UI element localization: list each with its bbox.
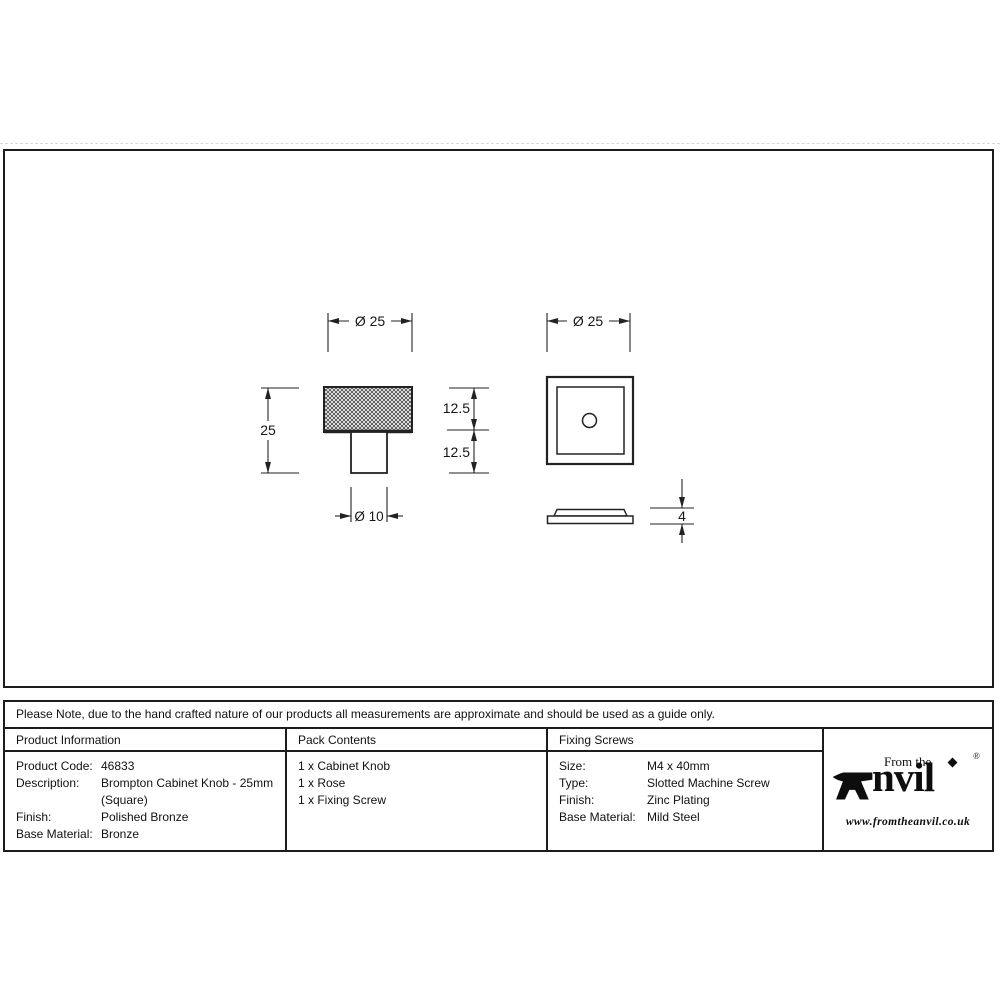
screw-base-material-row: Base Material: Mild Steel bbox=[559, 809, 814, 826]
pack-item: 1 x Rose bbox=[298, 775, 538, 792]
brand-logo-cell: From the ® nvil www.fromtheanvil.co.uk bbox=[824, 729, 992, 850]
fixing-screws-column: Fixing Screws Size: M4 x 40mm Type: Slot… bbox=[548, 729, 824, 850]
dim-label-stem-width: Ø 10 bbox=[354, 509, 383, 524]
screw-size-row: Size: M4 x 40mm bbox=[559, 758, 814, 775]
knob-head bbox=[324, 387, 412, 432]
finish-row: Finish: Polished Bronze bbox=[16, 809, 277, 826]
screw-type-row: Type: Slotted Machine Screw bbox=[559, 775, 814, 792]
pack-contents-header: Pack Contents bbox=[287, 729, 546, 752]
knob-stem bbox=[351, 432, 387, 473]
registered-trademark-symbol: ® bbox=[973, 751, 980, 761]
screw-finish-row: Finish: Zinc Plating bbox=[559, 792, 814, 809]
rose-side-top-plate bbox=[554, 510, 627, 517]
screw-type-label: Type: bbox=[559, 775, 647, 792]
dimension-rose-thickness bbox=[650, 479, 694, 543]
product-information-header: Product Information bbox=[5, 729, 285, 752]
dim-label-rose-thickness: 4 bbox=[678, 508, 686, 524]
diamond-icon bbox=[948, 757, 958, 767]
finish-label: Finish: bbox=[16, 809, 101, 826]
product-code-row: Product Code: 46833 bbox=[16, 758, 277, 775]
screw-finish-label: Finish: bbox=[559, 792, 647, 809]
description-label: Description: bbox=[16, 775, 101, 809]
screw-size-value: M4 x 40mm bbox=[647, 758, 814, 775]
base-material-label: Base Material: bbox=[16, 826, 101, 843]
product-code-label: Product Code: bbox=[16, 758, 101, 775]
description-value: Brompton Cabinet Knob - 25mm (Square) bbox=[101, 775, 277, 809]
rose-screw-hole bbox=[583, 414, 597, 428]
spec-table-body: Product Information Product Code: 46833 … bbox=[5, 729, 992, 850]
screw-size-label: Size: bbox=[559, 758, 647, 775]
dim-label-head-height: 12.5 bbox=[443, 400, 470, 416]
screw-base-material-value: Mild Steel bbox=[647, 809, 814, 826]
base-material-row: Base Material: Bronze bbox=[16, 826, 277, 843]
pack-item: 1 x Fixing Screw bbox=[298, 792, 538, 809]
base-material-value: Bronze bbox=[101, 826, 277, 843]
description-row: Description: Brompton Cabinet Knob - 25m… bbox=[16, 775, 277, 809]
logo-anvil-wordmark: nvil bbox=[872, 755, 934, 799]
dim-label-rose-width: Ø 25 bbox=[573, 313, 604, 329]
spec-table: Please Note, due to the hand crafted nat… bbox=[3, 700, 994, 852]
perforation-line bbox=[0, 143, 1000, 144]
finish-value: Polished Bronze bbox=[101, 809, 277, 826]
dim-label-knob-height: 25 bbox=[260, 422, 276, 438]
anvil-icon bbox=[832, 767, 874, 803]
measurement-note: Please Note, due to the hand crafted nat… bbox=[5, 702, 992, 729]
product-information-column: Product Information Product Code: 46833 … bbox=[5, 729, 287, 850]
product-code-value: 46833 bbox=[101, 758, 277, 775]
dim-label-knob-width: Ø 25 bbox=[355, 313, 386, 329]
technical-drawing-canvas: Ø 25 25 12.5 12.5 bbox=[3, 149, 994, 688]
from-the-anvil-logo: From the ® nvil www.fromtheanvil.co.uk bbox=[832, 754, 984, 826]
screw-type-value: Slotted Machine Screw bbox=[647, 775, 814, 792]
rose-side-base-plate bbox=[548, 516, 634, 524]
screw-base-material-label: Base Material: bbox=[559, 809, 647, 826]
dim-label-stem-height: 12.5 bbox=[443, 444, 470, 460]
rose-views: Ø 25 4 bbox=[547, 313, 694, 543]
logo-website-url: www.fromtheanvil.co.uk bbox=[832, 816, 984, 828]
pack-item: 1 x Cabinet Knob bbox=[298, 758, 538, 775]
screw-finish-value: Zinc Plating bbox=[647, 792, 814, 809]
fixing-screws-header: Fixing Screws bbox=[548, 729, 822, 752]
knob-side-view: Ø 25 25 12.5 12.5 bbox=[260, 313, 489, 524]
pack-contents-column: Pack Contents 1 x Cabinet Knob 1 x Rose … bbox=[287, 729, 548, 850]
